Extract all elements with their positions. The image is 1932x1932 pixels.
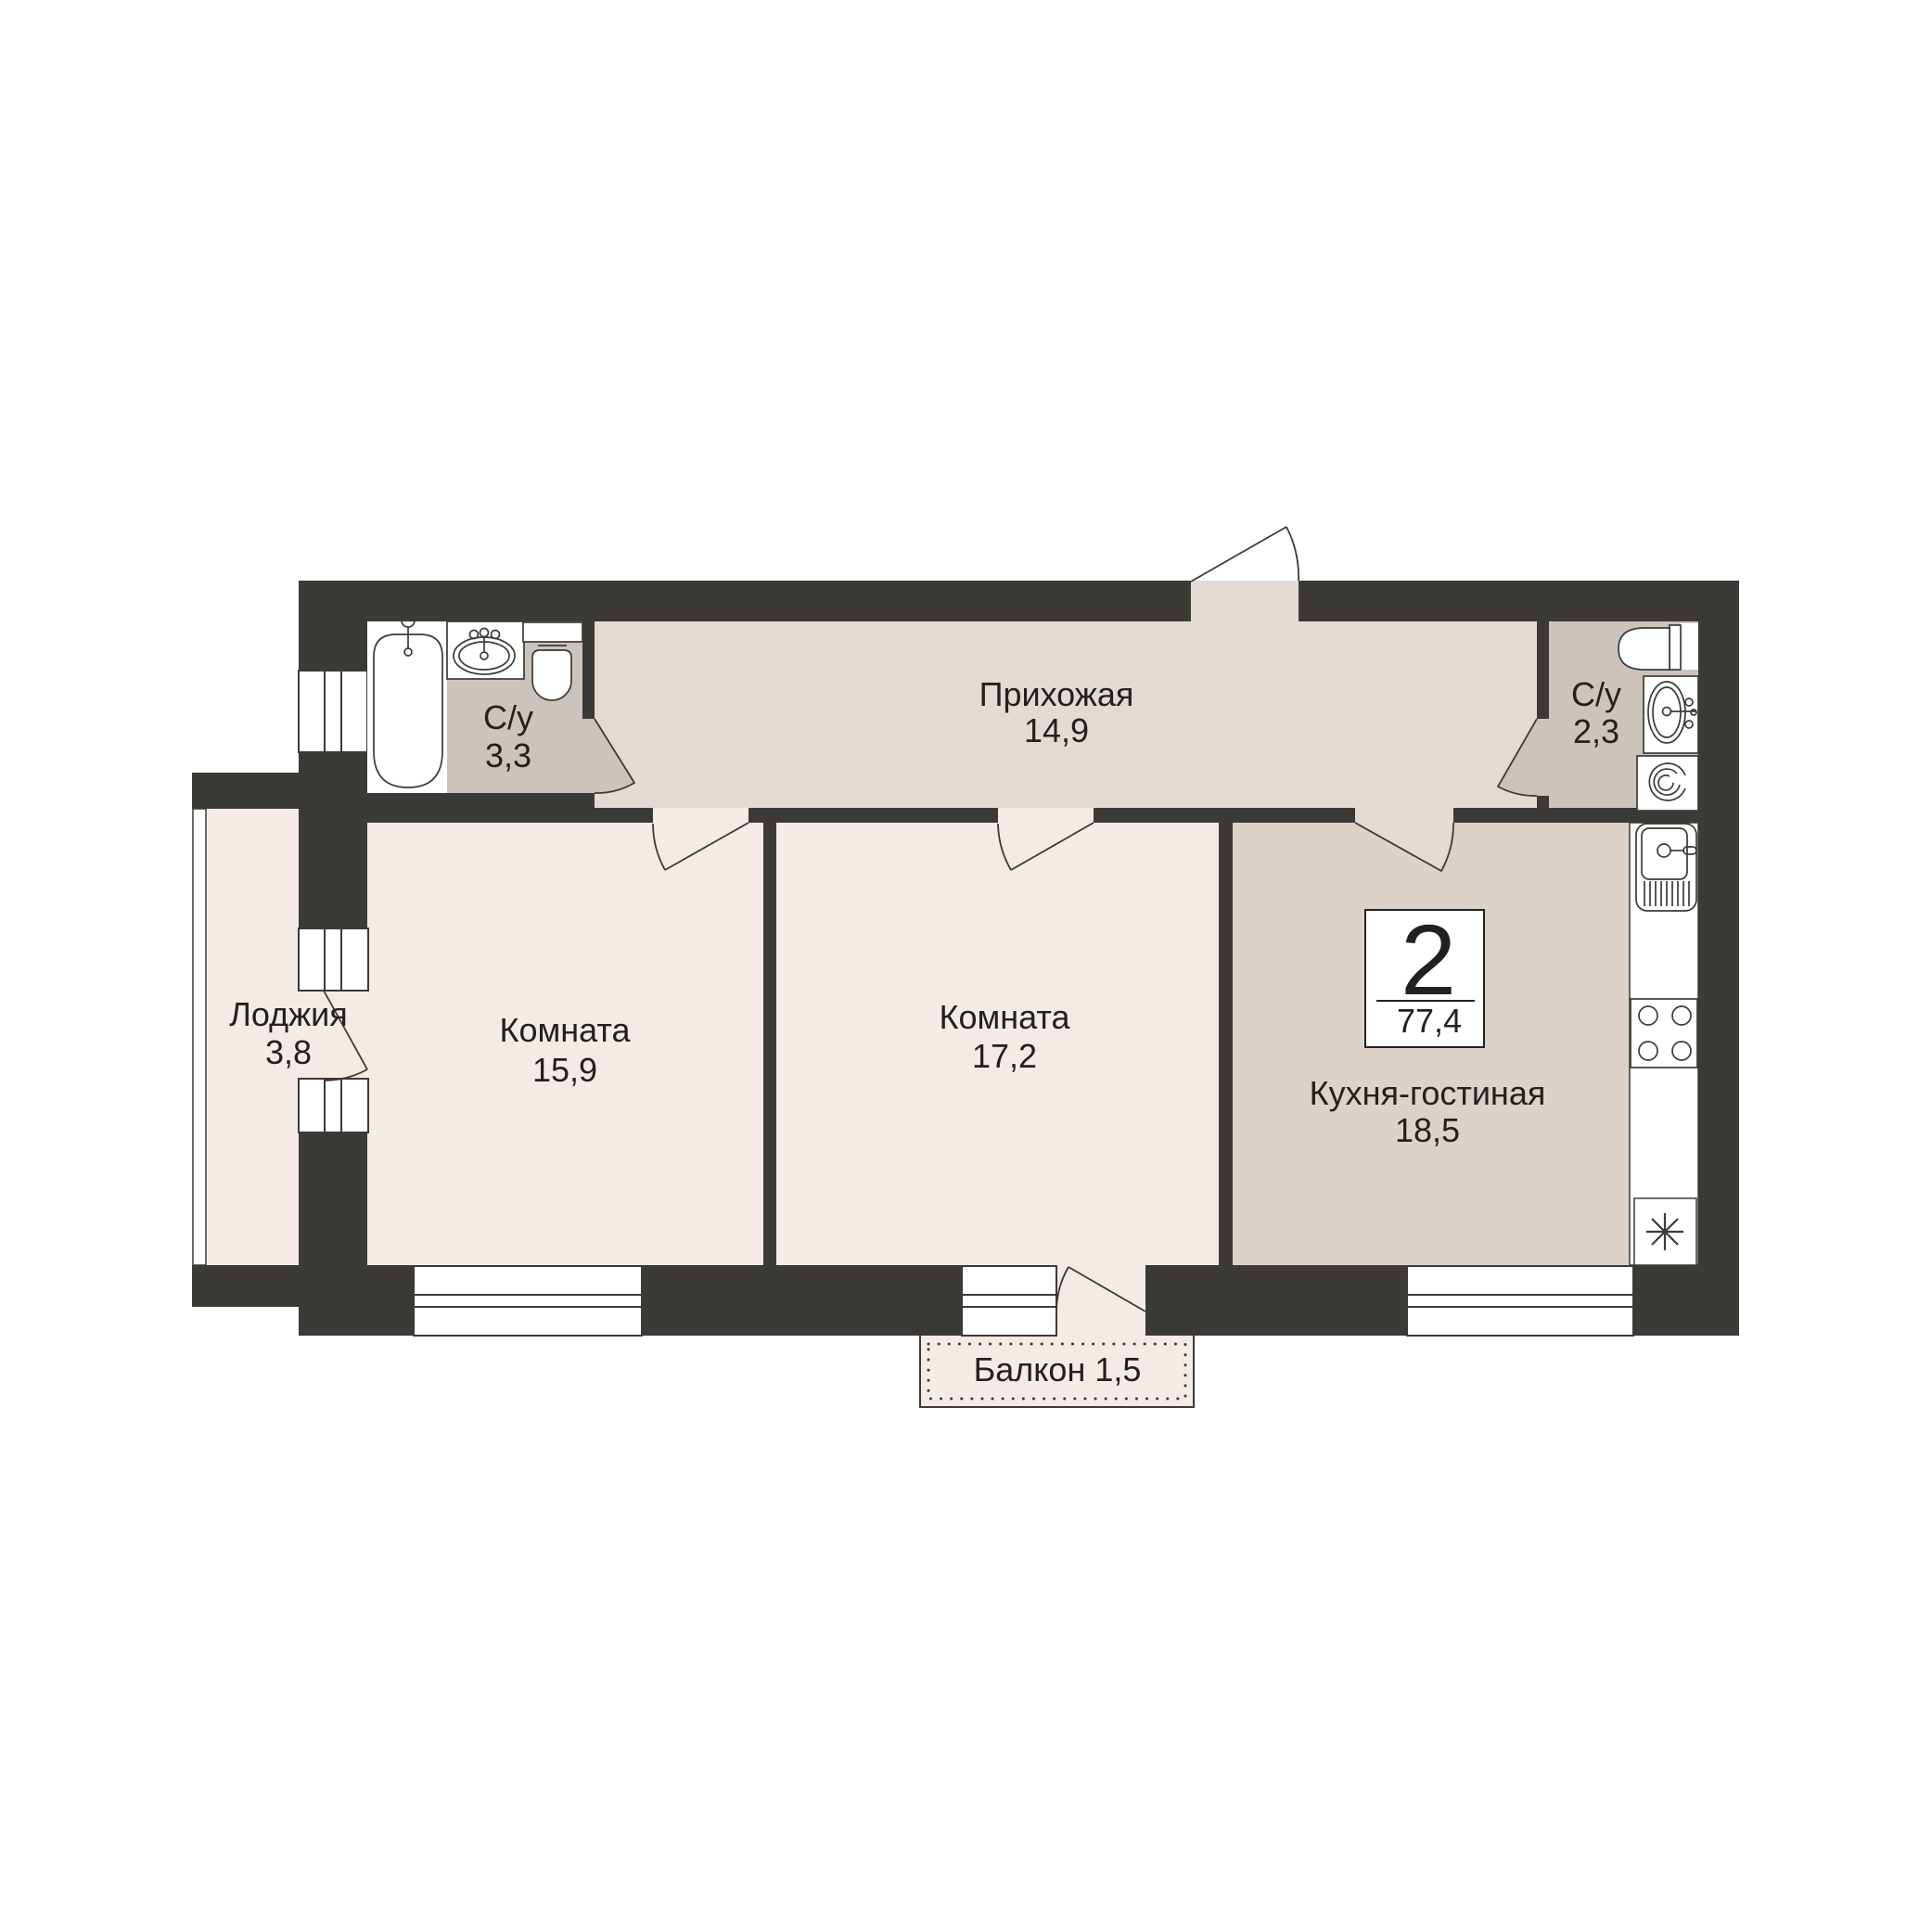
svg-text:3,3: 3,3 [485,736,531,774]
svg-text:77,4: 77,4 [1397,1002,1462,1040]
svg-text:3,8: 3,8 [265,1033,312,1071]
svg-text:Кухня-гостиная: Кухня-гостиная [1310,1074,1546,1112]
svg-text:2,3: 2,3 [1573,712,1619,750]
svg-text:Лоджия: Лоджия [229,995,348,1033]
svg-text:Балкон 1,5: Балкон 1,5 [974,1350,1142,1388]
svg-text:Прихожая: Прихожая [979,675,1134,713]
svg-text:С/у: С/у [483,698,533,736]
svg-text:С/у: С/у [1571,675,1621,713]
svg-text:17,2: 17,2 [972,1037,1037,1075]
svg-text:15,9: 15,9 [532,1051,597,1089]
svg-text:Комната: Комната [500,1011,632,1049]
svg-text:18,5: 18,5 [1395,1111,1460,1149]
svg-text:Комната: Комната [940,998,1071,1036]
svg-text:14,9: 14,9 [1024,711,1089,749]
svg-text:2: 2 [1401,903,1456,1016]
